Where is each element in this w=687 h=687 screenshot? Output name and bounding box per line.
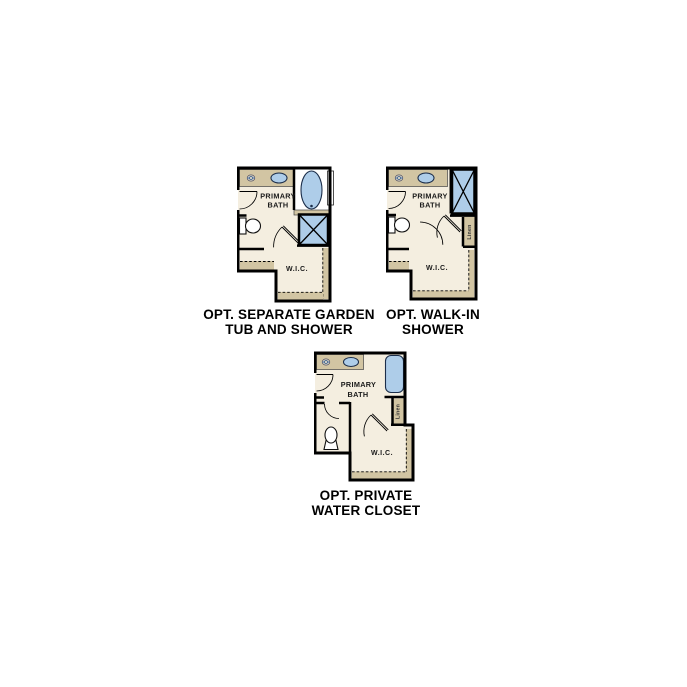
wic-label: W.I.C. (371, 450, 393, 457)
caption-line: OPT. PRIVATE (286, 488, 446, 503)
faucet-icon (395, 175, 403, 181)
floorplan-options-sheet: PRIMARY BATH W.I.C. OPT. SEPARATE GARDEN… (0, 0, 687, 687)
caption-line: SHOWER (353, 322, 513, 337)
plan-caption-walk-in-shower: OPT. WALK-IN SHOWER (353, 307, 513, 337)
primary-bath-label-line1: PRIMARY (412, 192, 447, 201)
floor-plan-private-water-closet: PRIMARY BATH Linen W.I.C. (314, 351, 416, 485)
primary-bath-label-line2: BATH (348, 390, 369, 399)
caption-line: WATER CLOSET (286, 503, 446, 518)
floor-plan-walk-in-shower: PRIMARY BATH Linen W.I.C. (386, 166, 484, 304)
wic-label: W.I.C. (286, 266, 308, 273)
faucet-icon (322, 359, 330, 365)
linen-label: Linen (467, 224, 473, 239)
shower-icon (299, 215, 328, 246)
floor-plan-separate-garden-tub-and-shower: PRIMARY BATH W.I.C. (237, 166, 337, 304)
toilet-icon (240, 218, 261, 234)
sink-icon (344, 358, 359, 367)
faucet-icon (247, 175, 255, 181)
garden-tub-icon (301, 171, 322, 209)
primary-bath-label-line1: PRIMARY (260, 192, 295, 201)
primary-bath-label-line1: PRIMARY (341, 380, 376, 389)
primary-bath-label-line2: BATH (420, 201, 441, 210)
sink-icon (271, 173, 287, 183)
caption-line: OPT. WALK-IN (353, 307, 513, 322)
toilet-icon (324, 427, 338, 450)
tub-drain (310, 205, 313, 208)
walk-in-shower-icon (452, 170, 475, 214)
plan-caption-private-water-closet: OPT. PRIVATE WATER CLOSET (286, 488, 446, 518)
sink-icon (418, 173, 434, 183)
primary-bath-label-line2: BATH (268, 201, 289, 210)
linen-label: Linen (396, 404, 402, 419)
toilet-icon (389, 217, 410, 233)
tub-icon (386, 356, 404, 393)
wic-label: W.I.C. (426, 265, 448, 272)
